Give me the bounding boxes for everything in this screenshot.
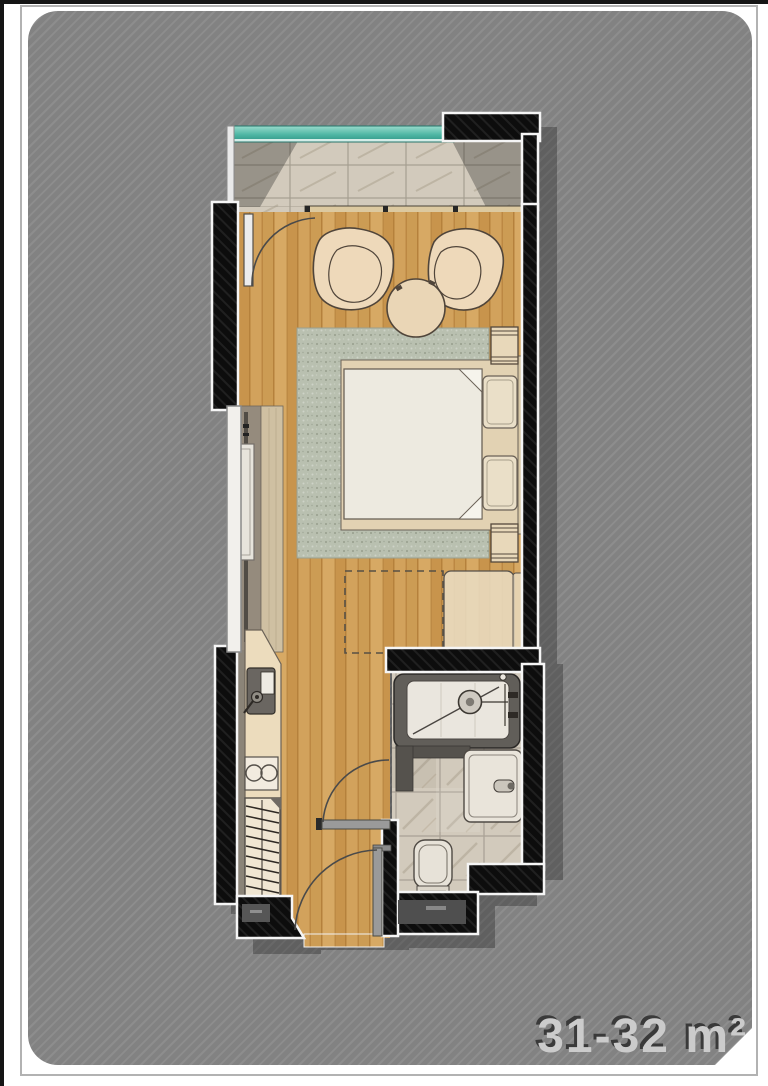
wardrobe-niche bbox=[236, 406, 283, 652]
bathroom-door-leaf bbox=[322, 820, 390, 829]
double-bed bbox=[341, 356, 526, 534]
wall-left-lower bbox=[215, 646, 237, 904]
toilet bbox=[414, 840, 452, 896]
pillow bbox=[483, 376, 517, 428]
entry-threshold bbox=[304, 934, 384, 947]
balcony-door-leaf bbox=[244, 214, 253, 286]
nightstand-top bbox=[491, 327, 518, 364]
area-label: 31-32 m² bbox=[537, 1009, 748, 1064]
entry-door-leaf bbox=[373, 848, 382, 936]
floor-plan bbox=[0, 0, 768, 1086]
bench bbox=[444, 571, 525, 653]
kitchenette bbox=[237, 630, 281, 900]
wall-left-upper bbox=[212, 202, 238, 410]
wall-bathroom-top bbox=[386, 648, 540, 672]
balcony-side-rail bbox=[227, 126, 234, 210]
kitchen-sink bbox=[244, 668, 275, 714]
wall-right-balcony bbox=[522, 134, 538, 210]
wall-bathroom-right bbox=[522, 664, 544, 870]
pillow bbox=[483, 456, 517, 510]
bathroom bbox=[392, 652, 522, 896]
wall-bathroom-step bbox=[468, 864, 544, 894]
shelf-unit bbox=[245, 798, 281, 898]
nightstand-bottom bbox=[491, 524, 518, 562]
wall-entry-divider bbox=[382, 820, 398, 936]
wall-niche-thin bbox=[227, 406, 241, 652]
coffee-table bbox=[387, 279, 445, 337]
two-burner-cooktop bbox=[245, 757, 278, 790]
shower-valve bbox=[508, 712, 518, 718]
wall-right-main bbox=[522, 204, 538, 654]
bed-duvet bbox=[344, 369, 482, 519]
vanity-sink bbox=[464, 750, 522, 822]
shower-valve bbox=[508, 692, 518, 698]
armchair-left bbox=[313, 228, 393, 310]
glass-highlight bbox=[229, 139, 453, 142]
